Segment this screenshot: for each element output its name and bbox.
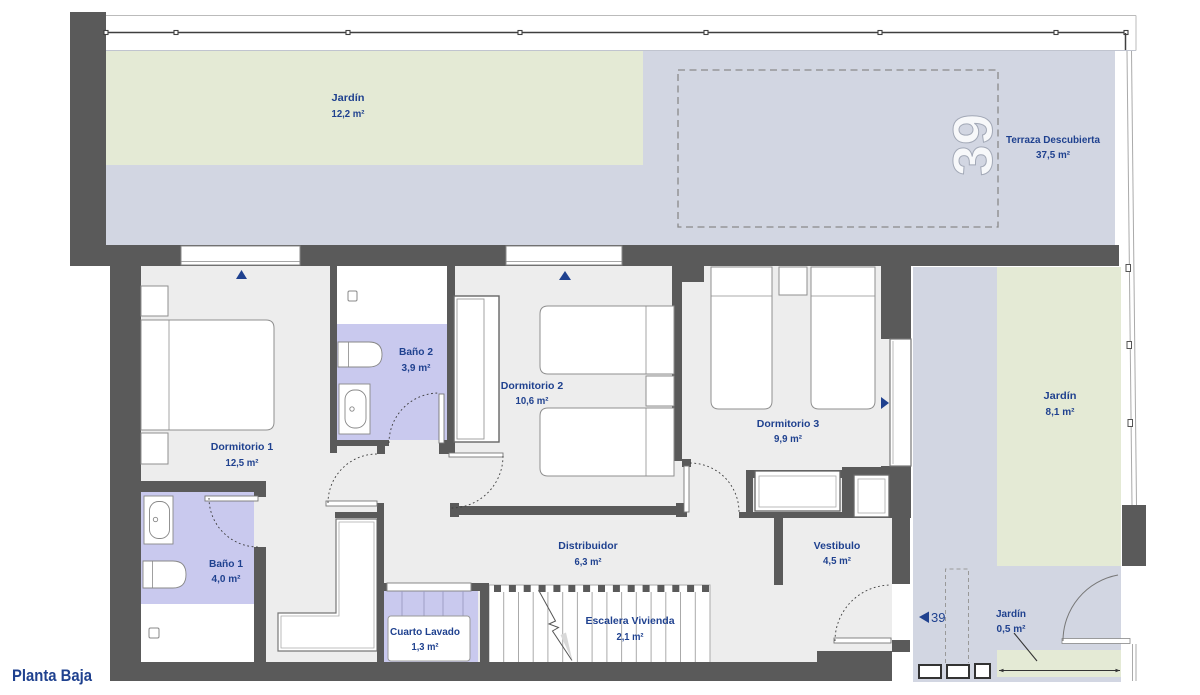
svg-text:Terraza Descubierta: Terraza Descubierta xyxy=(1006,134,1100,146)
svg-text:Planta Baja: Planta Baja xyxy=(12,666,92,685)
svg-text:37,5 m²: 37,5 m² xyxy=(1036,149,1070,161)
svg-text:Jardín: Jardín xyxy=(996,608,1026,620)
svg-text:2,1 m²: 2,1 m² xyxy=(617,631,644,643)
svg-text:0,5 m²: 0,5 m² xyxy=(997,623,1026,635)
svg-text:4,5 m²: 4,5 m² xyxy=(823,555,851,567)
svg-text:Cuarto Lavado: Cuarto Lavado xyxy=(390,626,460,638)
svg-text:Escalera Vivienda: Escalera Vivienda xyxy=(585,615,674,627)
svg-text:Jardín: Jardín xyxy=(1044,390,1077,402)
svg-text:Baño 2: Baño 2 xyxy=(399,346,433,358)
svg-text:Distribuidor: Distribuidor xyxy=(558,540,618,552)
svg-text:12,5 m²: 12,5 m² xyxy=(226,457,259,469)
svg-text:6,3 m²: 6,3 m² xyxy=(575,556,602,568)
svg-text:Dormitorio 3: Dormitorio 3 xyxy=(757,418,820,430)
svg-text:9,9 m²: 9,9 m² xyxy=(774,433,802,445)
svg-text:39: 39 xyxy=(941,114,1004,176)
svg-text:3,9 m²: 3,9 m² xyxy=(402,362,431,374)
svg-text:Jardín: Jardín xyxy=(332,92,365,104)
svg-text:1,3 m²: 1,3 m² xyxy=(412,641,439,653)
svg-text:10,6 m²: 10,6 m² xyxy=(516,395,549,407)
svg-text:39: 39 xyxy=(931,610,945,625)
svg-text:Vestibulo: Vestibulo xyxy=(814,540,861,552)
svg-text:Dormitorio 2: Dormitorio 2 xyxy=(501,380,564,392)
svg-text:12,2 m²: 12,2 m² xyxy=(332,108,365,120)
svg-text:4,0 m²: 4,0 m² xyxy=(212,573,241,585)
svg-text:Dormitorio 1: Dormitorio 1 xyxy=(211,441,274,453)
svg-text:Baño 1: Baño 1 xyxy=(209,558,243,570)
svg-text:8,1 m²: 8,1 m² xyxy=(1046,406,1075,418)
